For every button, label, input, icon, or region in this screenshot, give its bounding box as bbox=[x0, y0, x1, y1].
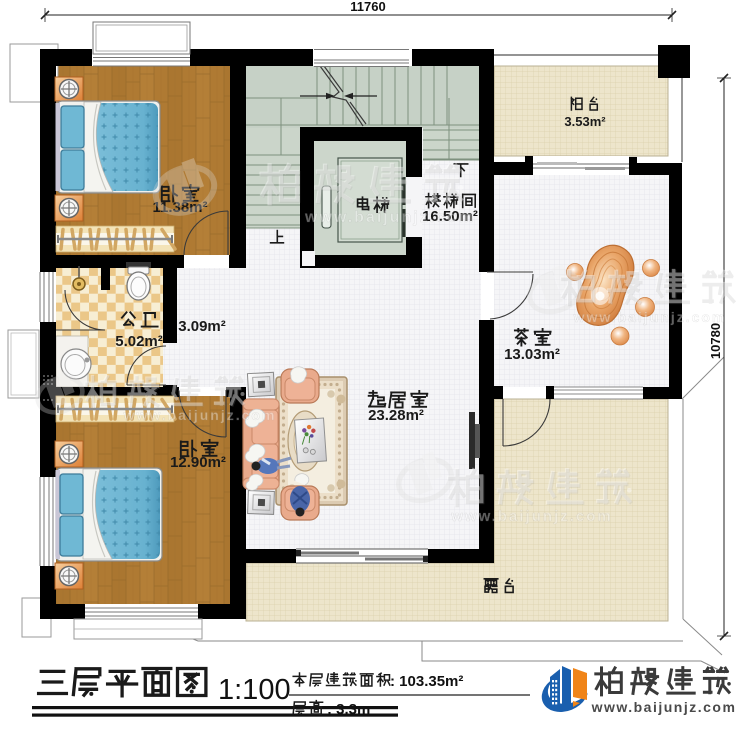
svg-text:: 3.3m: : 3.3m bbox=[327, 701, 370, 718]
svg-text:10780: 10780 bbox=[708, 323, 723, 359]
svg-text:: 103.35m²: : 103.35m² bbox=[390, 673, 463, 690]
svg-text:3.09m²: 3.09m² bbox=[178, 318, 226, 335]
svg-text:11760: 11760 bbox=[350, 0, 385, 14]
svg-text:23.28m²: 23.28m² bbox=[368, 407, 424, 424]
svg-text:www.baijunjz.com: www.baijunjz.com bbox=[591, 699, 737, 715]
svg-text:www.baijunjz.com: www.baijunjz.com bbox=[450, 508, 612, 525]
svg-text:13.03m²: 13.03m² bbox=[504, 346, 560, 363]
svg-text:www.baijunjz.com: www.baijunjz.com bbox=[304, 209, 475, 226]
svg-text:www.baijunjz.com: www.baijunjz.com bbox=[573, 309, 727, 325]
svg-text:www.baijunjz.com: www.baijunjz.com bbox=[123, 407, 277, 423]
svg-text:1:100: 1:100 bbox=[218, 674, 291, 706]
svg-text:3.53m²: 3.53m² bbox=[564, 114, 606, 129]
svg-text:12.90m²: 12.90m² bbox=[170, 454, 226, 471]
svg-text:5.02m²: 5.02m² bbox=[115, 333, 163, 350]
